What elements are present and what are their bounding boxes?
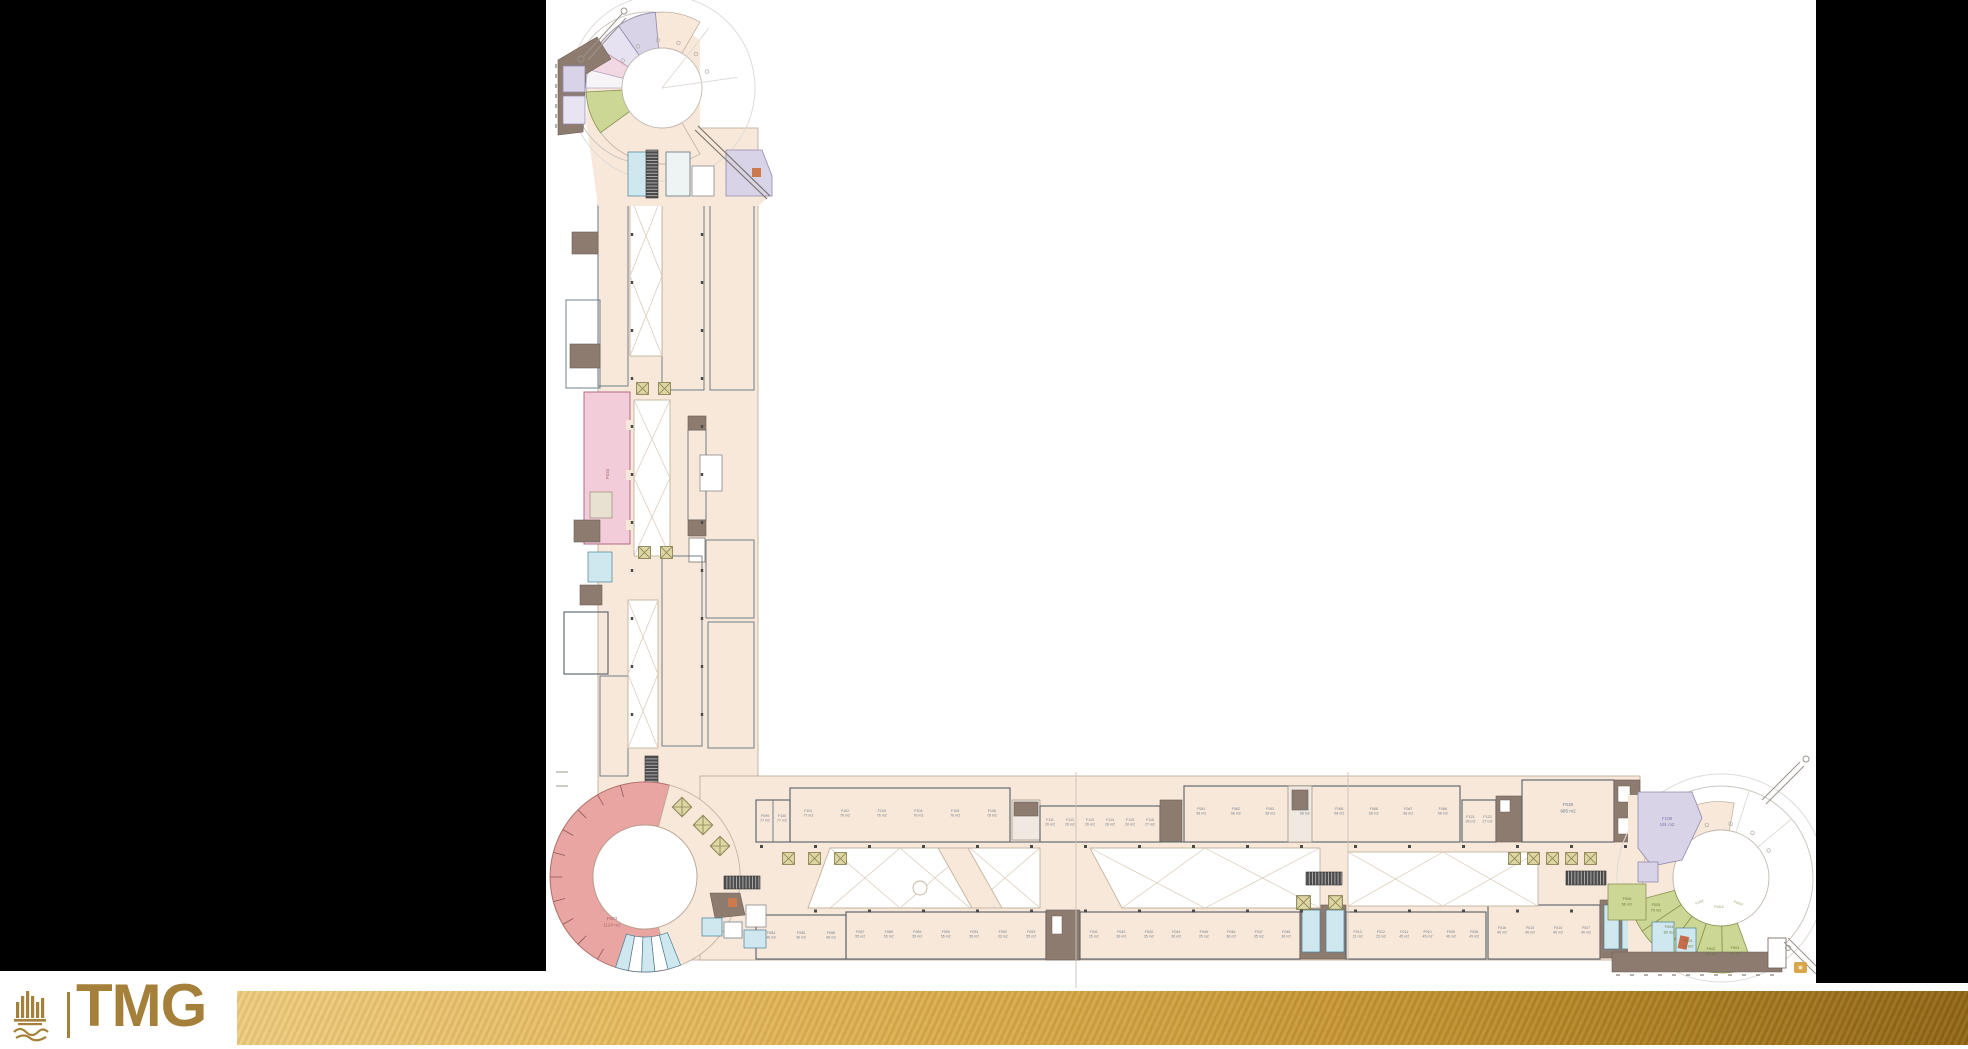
service-band [1612,952,1782,972]
svg-text:F04335 m2: F04335 m2 [1144,930,1154,939]
svg-text:F10276 m2: F10276 m2 [840,809,850,818]
svg-text:F04135 m2: F04135 m2 [1089,930,1099,939]
svg-text:F11326 m2: F11326 m2 [1085,818,1095,827]
svg-text:F11428 m2: F11428 m2 [1105,818,1115,827]
svg-text:56 m2: 56 m2 [1622,902,1633,907]
svg-text:F1012: F1012 [1714,905,1723,909]
svg-text:F08648 m2: F08648 m2 [826,931,836,940]
svg-text:F002: F002 [1707,946,1716,951]
svg-text:F01645 m2: F01645 m2 [1497,926,1507,935]
svg-text:F06658 m2: F06658 m2 [1369,807,1379,816]
svg-text:F08855 m2: F08855 m2 [884,930,894,939]
kiosk-stand [659,383,671,395]
svg-text:F005: F005 [1652,902,1661,907]
kiosk-stand [809,853,821,865]
lavender-shop-id: F108 [1662,816,1673,821]
service-block [572,232,598,254]
pink-store-label: F034 [605,468,610,479]
svg-text:F004: F004 [1665,924,1675,929]
svg-text:F01223 m2: F01223 m2 [1376,930,1386,939]
svg-text:F11226 m2: F11226 m2 [1065,818,1075,827]
kiosk-stand [1585,853,1597,865]
elevator-cab [1768,938,1786,968]
lavender-shop-area: 191 m2 [1660,822,1675,827]
side-room [746,905,766,927]
service-wedge [710,893,745,918]
side-room [700,455,722,491]
orange-fixture [752,168,761,177]
bottom-right-court-node [1608,756,1825,982]
svg-text:F00946 m2: F00946 m2 [1446,930,1456,939]
svg-text:F09355 m2: F09355 m2 [1026,930,1036,939]
elevator-block [688,416,706,430]
svg-text:F12126 m2: F12126 m2 [1466,815,1476,824]
svg-text:80 m2: 80 m2 [1730,951,1741,956]
svg-text:F06458 m2: F06458 m2 [1300,807,1310,816]
restroom [702,918,722,936]
restroom [1326,910,1344,952]
svg-text:F10678 m2: F10678 m2 [987,809,997,818]
top-left-court-node [556,0,772,206]
atrium-void-3 [628,600,658,748]
svg-text:F09155 m2: F09155 m2 [969,930,979,939]
svg-text:F06558 m2: F06558 m2 [1334,807,1344,816]
svg-text:F10376 m2: F10376 m2 [877,809,887,818]
svg-text:F04535 m2: F04535 m2 [1199,930,1209,939]
svg-text:F08546 m2: F08546 m2 [796,931,806,940]
anchor-id: F030 [1563,802,1574,807]
svg-text:F04836 m2: F04836 m2 [1281,930,1291,939]
service-block [580,585,602,605]
svg-text:F00745 m2: F00745 m2 [1581,926,1591,935]
svg-text:F06858 m2: F06858 m2 [1438,807,1448,816]
kiosk-stand [1528,853,1540,865]
svg-text:F01321 m2: F01321 m2 [1353,930,1363,939]
restroom [1302,910,1320,952]
small-room [666,152,690,196]
service-block [1160,800,1182,842]
svg-text:F10177 m2: F10177 m2 [803,809,813,818]
svg-text:77 m2: 77 m2 [777,819,787,823]
tmg-emblem-icon [8,988,56,1044]
left-black-bar [0,0,546,971]
conn-shop-id: F100 [778,814,786,818]
service-block [1046,910,1080,960]
kiosk-stand [1297,896,1311,910]
svg-text:F01545 m2: F01545 m2 [1525,926,1535,935]
svg-text:F11126 m2: F11126 m2 [1045,818,1055,827]
logo-separator [67,992,70,1038]
svg-text:F003: F003 [1684,938,1693,943]
right-black-bar [1816,0,1968,983]
svg-text:F006: F006 [1623,896,1632,901]
kiosk-stand [661,547,673,559]
planter-circle [913,881,927,895]
svg-text:F06758 m2: F06758 m2 [1403,807,1413,816]
restroom [744,930,766,948]
svg-text:F09233 m2: F09233 m2 [998,930,1008,939]
svg-text:F00845 m2: F00845 m2 [1469,930,1479,939]
svg-text:F06258 m2: F06258 m2 [1231,807,1241,816]
side-room [692,166,714,196]
slide-stage: F034 [0,0,1968,1049]
elevator-cab [689,538,705,562]
svg-text:F09055 m2: F09055 m2 [941,930,951,939]
utility-room [590,492,612,518]
svg-text:60 m2: 60 m2 [1706,952,1717,957]
svg-text:F01445 m2: F01445 m2 [1553,926,1563,935]
kiosk-stand [783,853,795,865]
svg-text:70 m2: 70 m2 [1683,944,1694,949]
svg-text:F08446 m2: F08446 m2 [766,931,776,940]
svg-text:F01045 m2: F01045 m2 [1423,930,1433,939]
conn-shop-id: F099 [761,814,769,818]
svg-text:F001: F001 [1731,945,1740,950]
service-block [570,344,600,368]
ring-store-area: 1124 m2 [603,923,621,928]
gold-footer-bar [237,991,1968,1045]
small-room [563,96,585,124]
svg-text:F08955 m2: F08955 m2 [912,930,922,939]
svg-text:F04636 m2: F04636 m2 [1226,930,1236,939]
atrium-void-2 [634,400,670,556]
kiosk-stand [1566,853,1578,865]
escalator [724,876,760,889]
elevator-block [1014,802,1038,816]
anchor-area: 985 m2 [1560,809,1576,814]
svg-text:F08755 m2: F08755 m2 [855,930,865,939]
ring-store-id: F033 [607,916,618,921]
small-room [724,922,742,938]
svg-text:F10576 m2: F10576 m2 [950,809,960,818]
svg-text:F11528 m2: F11528 m2 [1125,818,1135,827]
kiosk-stand [637,383,649,395]
kiosk-stand [1509,853,1521,865]
atrium-void-1 [630,196,662,356]
svg-text:F04436 m2: F04436 m2 [1171,930,1181,939]
service-block [574,520,600,542]
svg-text:80 m2: 80 m2 [1664,930,1675,935]
svg-text:70 m2: 70 m2 [1651,908,1662,913]
svg-text:77 m2: 77 m2 [760,819,770,823]
restroom [628,152,648,196]
orange-fixture [728,898,737,907]
kiosk-stand [1329,896,1343,910]
svg-text:F01145 m2: F01145 m2 [1399,930,1409,939]
kiosk-stand [1547,853,1559,865]
kiosk-stand [639,547,651,559]
small-room [1638,862,1658,882]
tmg-logo: TMG [8,986,233,1046]
svg-text:F04735 m2: F04735 m2 [1254,930,1264,939]
escalator [1566,871,1606,885]
svg-text:F12227 m2: F12227 m2 [1483,815,1493,824]
escalator [1306,872,1342,885]
svg-text:F11627 m2: F11627 m2 [1145,818,1155,827]
svg-text:F06158 m2: F06158 m2 [1196,807,1206,816]
svg-text:F10476 m2: F10476 m2 [913,809,923,818]
escalator [646,150,658,198]
court-inner-circle [593,825,697,929]
small-room [563,66,585,92]
restroom [588,552,612,582]
svg-text:F06358 m2: F06358 m2 [1265,807,1275,816]
logo-text: TMG [76,976,206,1036]
elevator-block [688,520,706,536]
svg-text:F04236 m2: F04236 m2 [1116,930,1126,939]
lavender-room [726,150,772,196]
corridor-void-2 [1090,848,1320,908]
kiosk-stand [835,853,847,865]
